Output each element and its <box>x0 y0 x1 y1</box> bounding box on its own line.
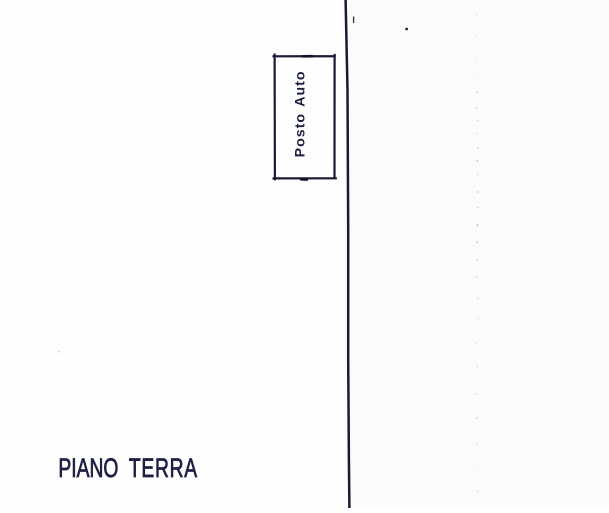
svg-text:Posto Auto: Posto Auto <box>293 70 309 157</box>
svg-text:PIANO: PIANO <box>58 453 118 483</box>
svg-text:TERRA: TERRA <box>129 453 198 483</box>
